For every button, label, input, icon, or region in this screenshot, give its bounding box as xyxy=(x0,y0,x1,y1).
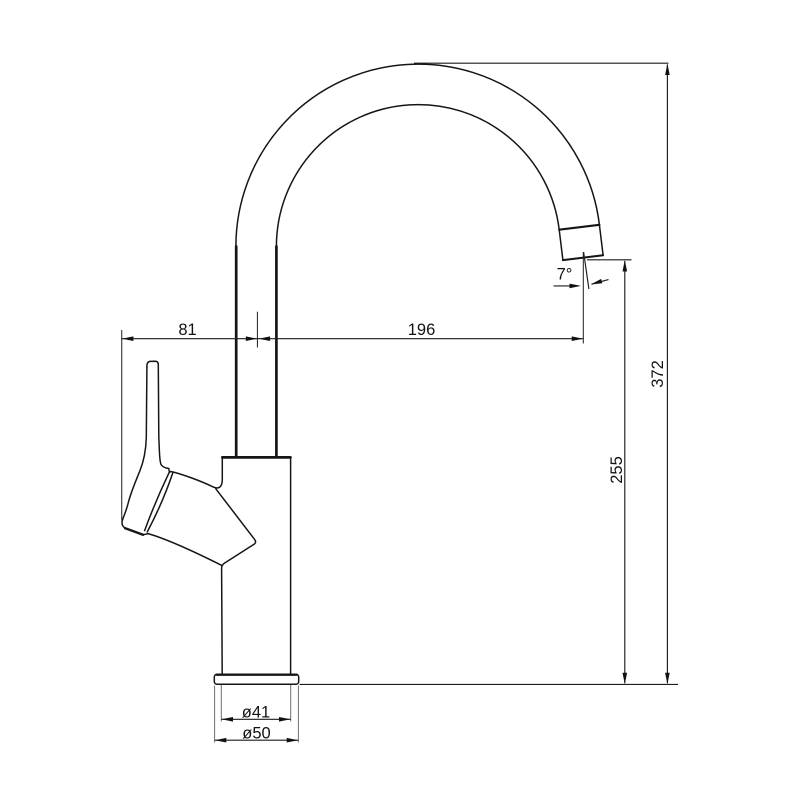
svg-text:196: 196 xyxy=(408,321,436,339)
svg-text:7°: 7° xyxy=(557,265,573,283)
svg-text:81: 81 xyxy=(178,321,196,339)
svg-text:255: 255 xyxy=(608,456,626,484)
svg-text:ø41: ø41 xyxy=(242,704,270,722)
svg-text:ø50: ø50 xyxy=(242,725,270,743)
svg-text:372: 372 xyxy=(649,360,667,388)
